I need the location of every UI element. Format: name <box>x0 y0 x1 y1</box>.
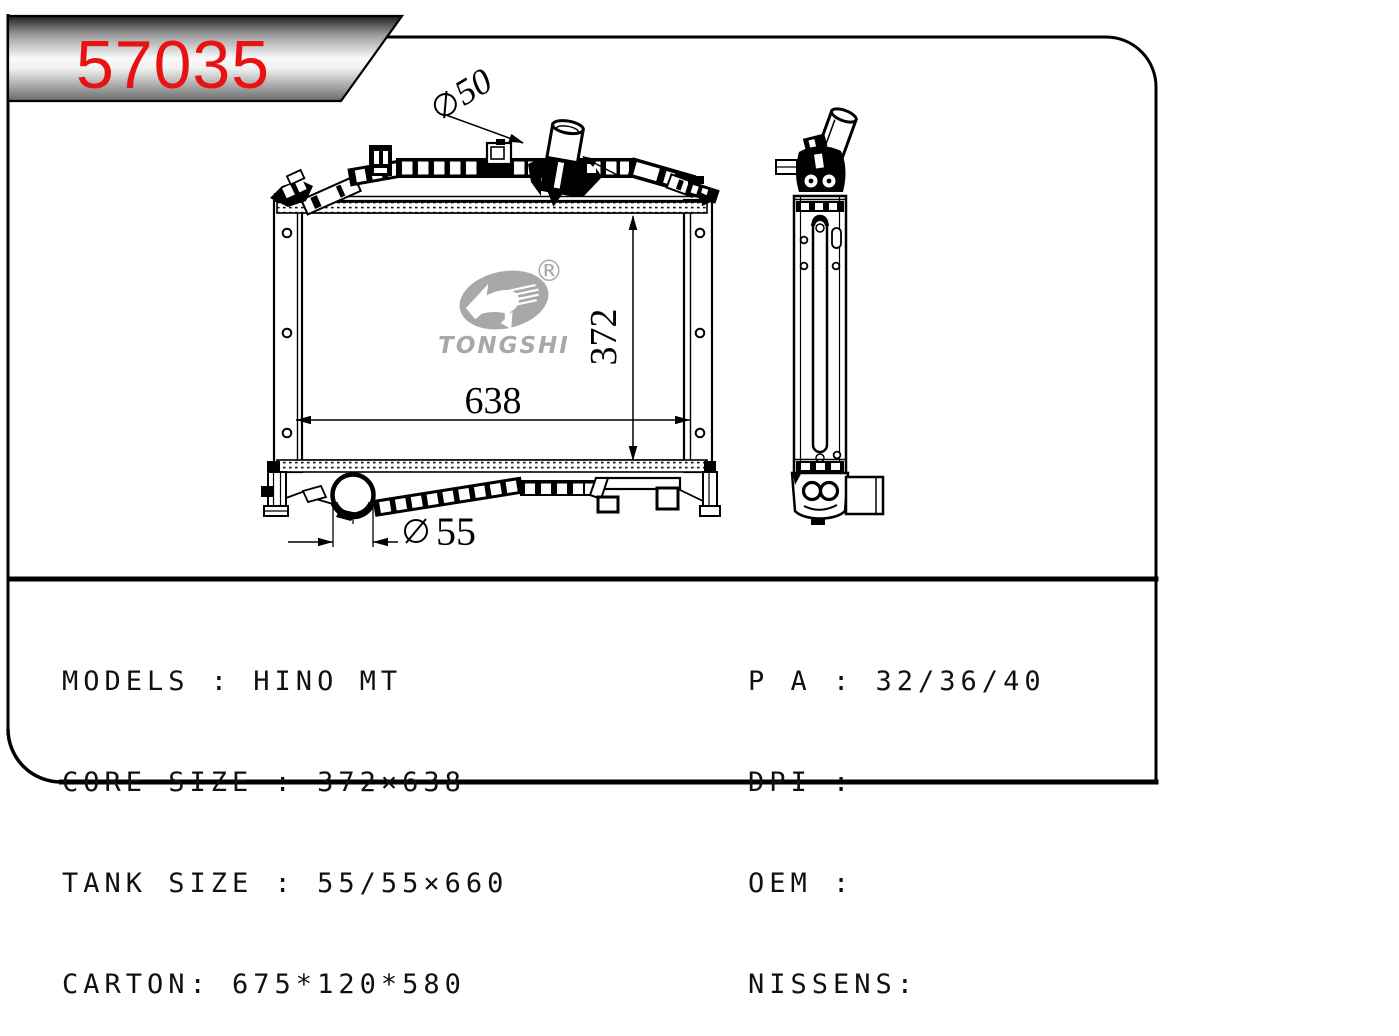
svg-text:55: 55 <box>436 509 476 554</box>
dimension-core-height: 372 <box>583 215 637 461</box>
spec-models: MODELS : HINO MT <box>62 663 508 702</box>
registered-mark: ® <box>535 254 564 288</box>
spec-panel-left: MODELS : HINO MT CORE SIZE : 372×638 TAN… <box>62 601 508 1036</box>
part-number-badge: 57035 <box>8 16 402 103</box>
bottom-right-bracket <box>590 478 705 512</box>
bottom-left-bracket <box>261 472 288 516</box>
core-bottom-band <box>277 460 707 472</box>
spec-nissens: NISSENS: <box>748 966 1046 1005</box>
side-body <box>794 196 846 478</box>
side-outlet-pipe <box>846 477 883 514</box>
radiator-side-view <box>776 106 883 525</box>
spec-dpi: DPI : <box>748 764 1046 803</box>
front-right-frame <box>684 200 712 472</box>
inlet-diameter-label: 50 <box>426 60 499 126</box>
logo-brand-text: TONGSHI <box>438 333 570 359</box>
dimension-core-width: 638 <box>296 380 690 424</box>
bottom-tank <box>261 472 720 524</box>
part-number: 57035 <box>76 27 270 103</box>
front-left-frame <box>274 200 302 472</box>
svg-text:372: 372 <box>583 309 625 366</box>
bottom-right-foot <box>700 472 720 516</box>
spec-carton: CARTON: 675*120*580 <box>62 966 508 1005</box>
drain-plug <box>333 474 374 524</box>
spec-oem: OEM : <box>748 865 1046 904</box>
spec-panel-right: P A : 32/36/40 DPI : OEM : NISSENS: <box>748 601 1046 1036</box>
spec-core-size: CORE SIZE : 372×638 <box>62 764 508 803</box>
top-left-bracket <box>369 145 392 176</box>
spec-tank-size: TANK SIZE : 55/55×660 <box>62 865 508 904</box>
catalog-page: { "badge": { "part_number": "57035" }, "… <box>0 0 1399 810</box>
side-bottom-tank <box>792 473 883 525</box>
tongshi-logo: ® TONGSHI <box>438 254 570 359</box>
spec-pa: P A : 32/36/40 <box>748 663 1046 702</box>
svg-text:638: 638 <box>465 380 522 422</box>
top-square-bracket <box>487 139 511 164</box>
core-top-band <box>277 202 707 213</box>
drain-diameter-label: 55 <box>405 509 476 554</box>
